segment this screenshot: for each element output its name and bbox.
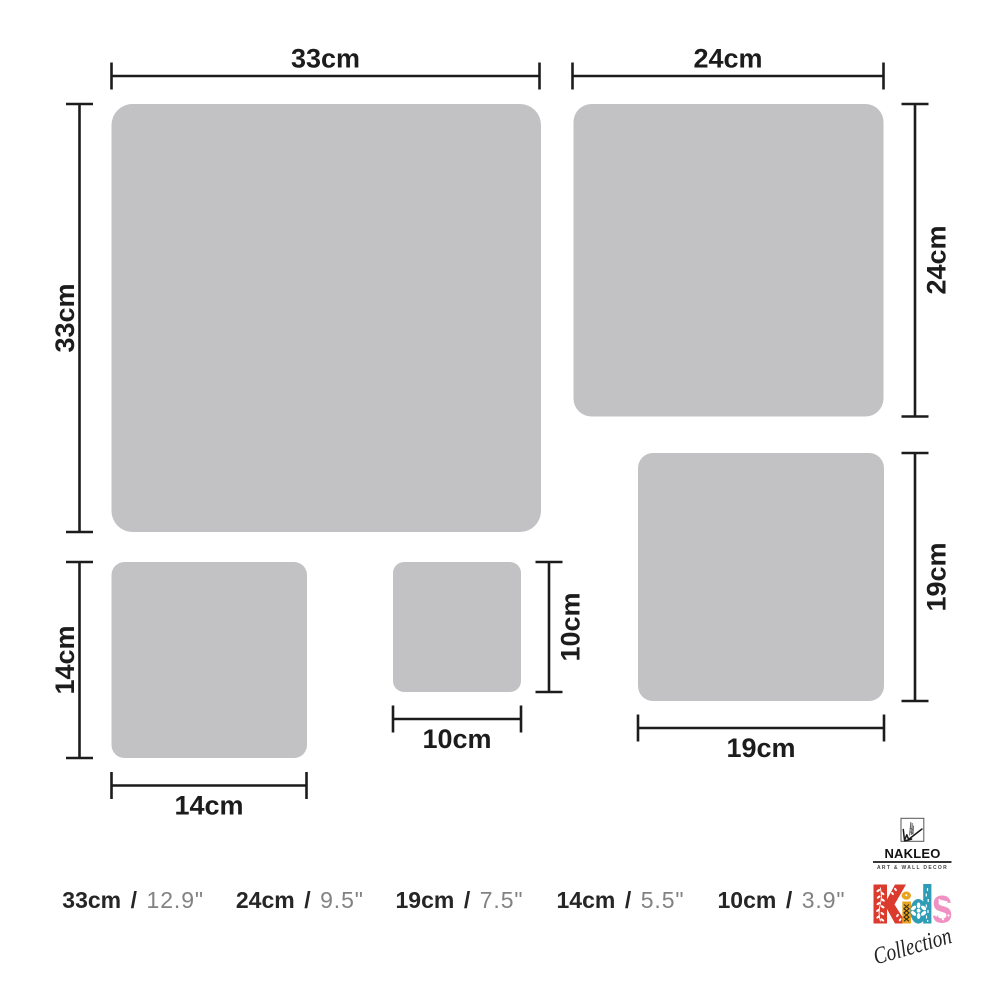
svg-text:NAKLEO: NAKLEO	[884, 846, 940, 861]
svg-text:Collection: Collection	[871, 923, 955, 970]
svg-text:ART & WALL DECOR: ART & WALL DECOR	[877, 865, 948, 871]
